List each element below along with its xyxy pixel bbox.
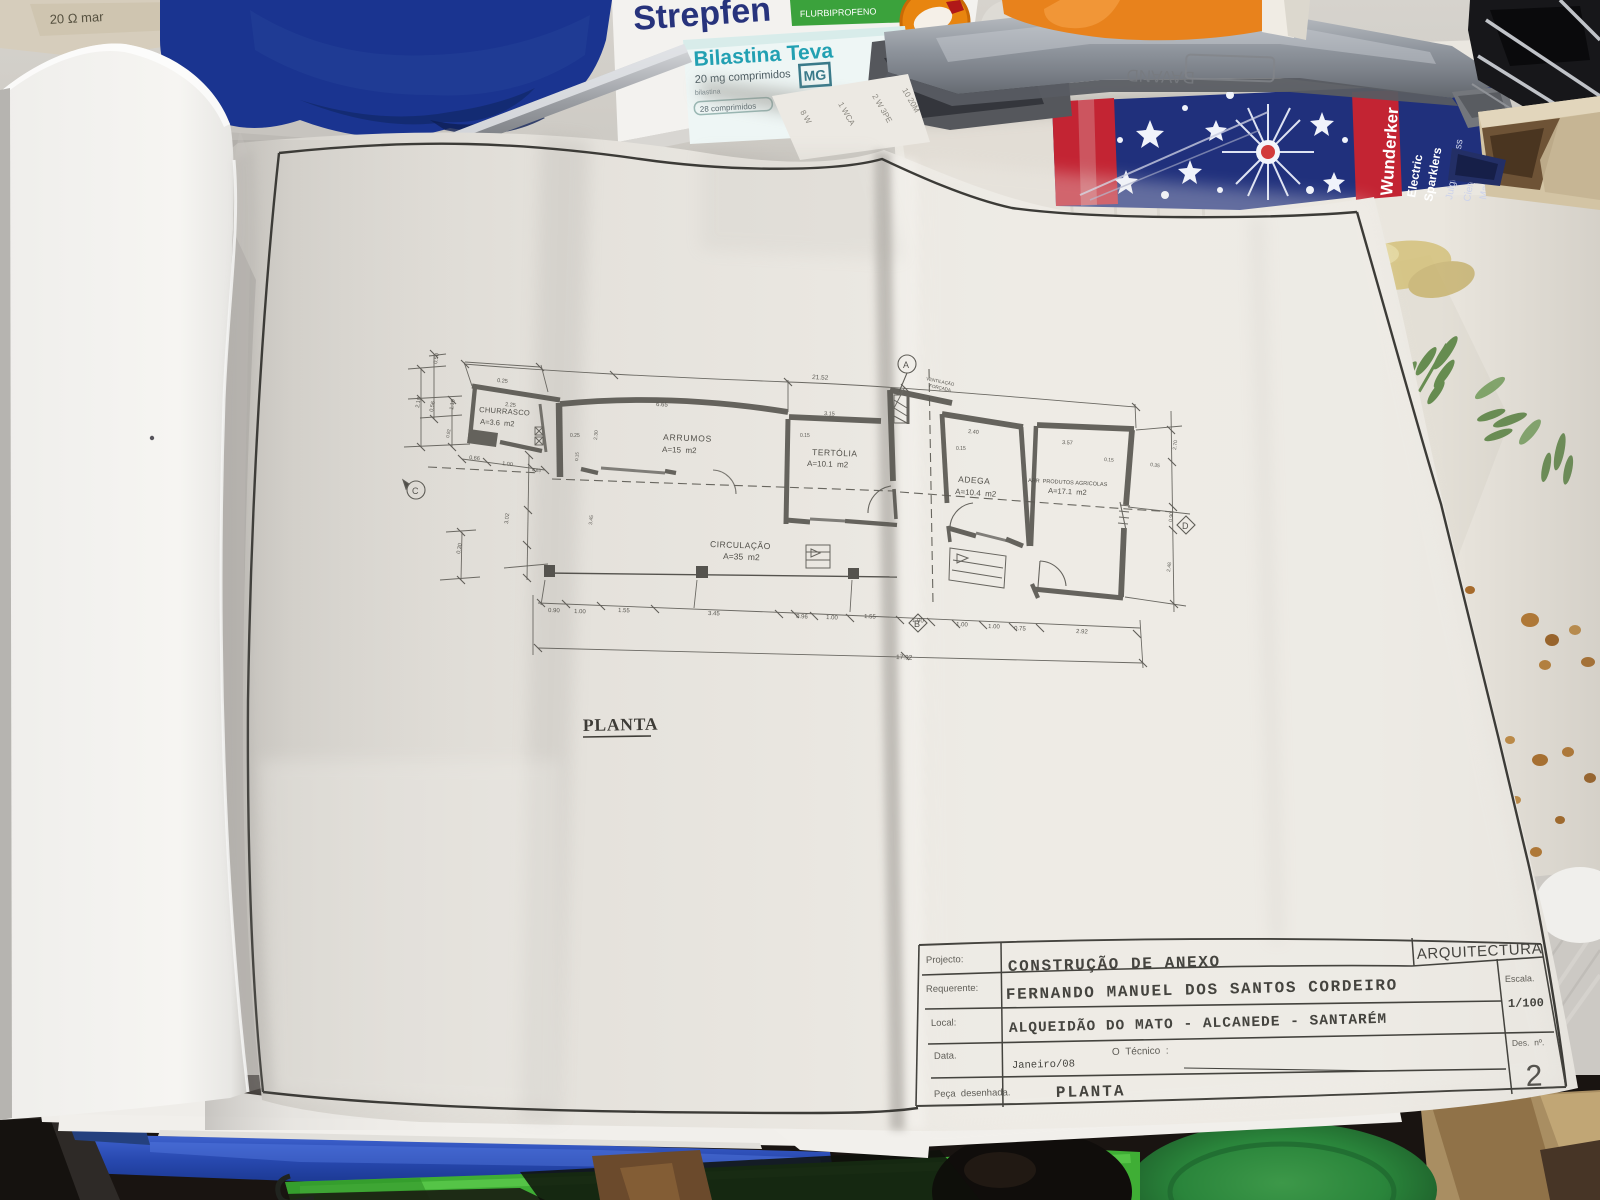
svg-text:Data.: Data. <box>934 1050 957 1062</box>
svg-text:FERNANDO MANUEL DOS SANTOS COR: FERNANDO MANUEL DOS SANTOS CORDEIRO <box>1006 976 1398 1004</box>
svg-text:Projecto:: Projecto: <box>926 954 964 966</box>
svg-text:Escala.: Escala. <box>1505 973 1535 984</box>
svg-text:CONSTRUÇÃO DE ANEXO: CONSTRUÇÃO DE ANEXO <box>1008 952 1221 976</box>
svg-text:O Técnico :: O Técnico : <box>1112 1046 1169 1058</box>
svg-text:Peça desenhada.: Peça desenhada. <box>934 1087 1011 1100</box>
svg-text:Janeiro/08: Janeiro/08 <box>1012 1058 1075 1072</box>
svg-text:PLANTA: PLANTA <box>1056 1082 1126 1102</box>
svg-text:ALQUEIDÃO DO MATO - ALCANEDE -: ALQUEIDÃO DO MATO - ALCANEDE - SANTARÉM <box>1009 1010 1388 1037</box>
svg-text:2: 2 <box>1525 1059 1543 1093</box>
svg-text:Local:: Local: <box>931 1017 957 1029</box>
svg-text:1/100: 1/100 <box>1508 996 1544 1011</box>
svg-text:ARQUITECTURA: ARQUITECTURA <box>1416 940 1542 963</box>
svg-text:Requerente:: Requerente: <box>926 983 979 995</box>
svg-text:Des. nº.: Des. nº. <box>1512 1037 1545 1048</box>
